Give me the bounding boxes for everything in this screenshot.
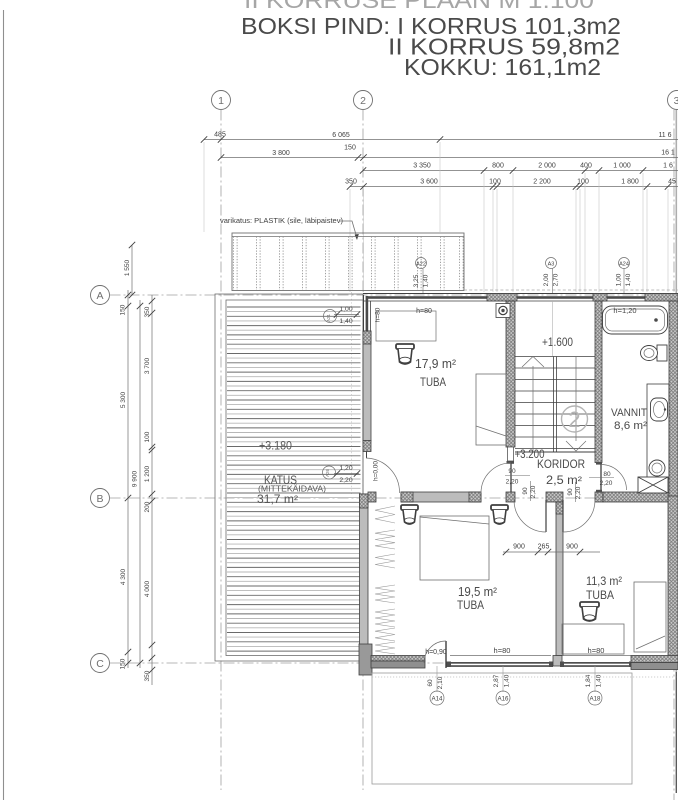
svg-text:2,20: 2,20 <box>575 486 582 499</box>
svg-text:3,25: 3,25 <box>413 274 420 287</box>
svg-text:9 900: 9 900 <box>132 470 139 487</box>
svg-text:3 350: 3 350 <box>413 163 431 170</box>
svg-text:17,9 m²: 17,9 m² <box>415 357 456 371</box>
svg-text:C: C <box>96 658 104 670</box>
svg-text:1,40: 1,40 <box>596 674 603 687</box>
svg-text:3 600: 3 600 <box>420 179 438 186</box>
svg-text:h=80: h=80 <box>375 307 382 322</box>
svg-text:3: 3 <box>674 95 678 107</box>
svg-text:1,00: 1,00 <box>616 273 623 286</box>
svg-text:2,00: 2,00 <box>543 273 550 286</box>
svg-text:1,40: 1,40 <box>504 674 511 687</box>
svg-text:100: 100 <box>577 179 589 186</box>
svg-text:2,20: 2,20 <box>600 480 613 487</box>
svg-text:1,84: 1,84 <box>585 674 592 687</box>
svg-text:11,3 m²: 11,3 m² <box>586 574 622 588</box>
svg-text:h=1,20: h=1,20 <box>613 306 636 315</box>
svg-text:350: 350 <box>144 306 151 317</box>
svg-text:A18: A18 <box>589 696 601 703</box>
svg-text:1,40: 1,40 <box>339 318 352 325</box>
svg-text:90: 90 <box>567 488 574 496</box>
svg-text:400: 400 <box>580 163 592 170</box>
svg-text:2: 2 <box>568 407 580 432</box>
svg-text:150: 150 <box>120 304 127 315</box>
svg-text:varikatus: PLASTIK (sile, läbi: varikatus: PLASTIK (sile, läbipaistev) <box>220 216 343 225</box>
svg-text:A16: A16 <box>497 696 509 703</box>
svg-text:2: 2 <box>360 95 366 107</box>
svg-text:h=80: h=80 <box>588 646 605 655</box>
svg-text:KOKKU: 161,1m2: KOKKU: 161,1m2 <box>404 54 601 80</box>
svg-text:1: 1 <box>218 95 224 107</box>
svg-text:2,20: 2,20 <box>506 479 519 486</box>
svg-text:A24: A24 <box>619 262 629 268</box>
svg-text:2,87: 2,87 <box>493 674 500 687</box>
svg-text:1 200: 1 200 <box>144 465 151 482</box>
svg-text:TUBA: TUBA <box>420 375 446 389</box>
svg-text:900: 900 <box>513 544 525 551</box>
svg-text:150: 150 <box>344 145 356 152</box>
svg-text:B: B <box>96 493 103 505</box>
svg-text:900: 900 <box>566 544 578 551</box>
svg-text:45: 45 <box>668 179 676 186</box>
svg-text:2,5 m²: 2,5 m² <box>546 475 582 487</box>
svg-text:VANNIT: VANNIT <box>611 407 647 419</box>
svg-text:A26: A26 <box>325 469 330 478</box>
svg-text:31,7 m²: 31,7 m² <box>257 494 298 506</box>
svg-text:4 300: 4 300 <box>120 568 127 585</box>
svg-text:3 700: 3 700 <box>144 357 151 374</box>
svg-text:1 800: 1 800 <box>621 179 639 186</box>
svg-text:II KORRUSE PLAAN M 1:100: II KORRUSE PLAAN M 1:100 <box>244 0 594 13</box>
svg-text:90: 90 <box>522 487 529 495</box>
svg-text:TUBA: TUBA <box>457 598 484 612</box>
svg-text:16 1: 16 1 <box>661 150 675 157</box>
svg-text:1,20: 1,20 <box>339 465 352 472</box>
svg-text:90: 90 <box>508 468 516 475</box>
svg-text:5 300: 5 300 <box>120 391 127 408</box>
svg-text:2,20: 2,20 <box>339 477 352 484</box>
svg-text:60: 60 <box>427 679 434 687</box>
svg-text:1,00: 1,00 <box>339 306 352 313</box>
svg-text:2,70: 2,70 <box>553 273 560 286</box>
svg-text:800: 800 <box>492 163 504 170</box>
svg-text:h=0,00: h=0,00 <box>373 461 380 481</box>
svg-text:3 800: 3 800 <box>272 150 290 157</box>
svg-text:350: 350 <box>345 179 357 186</box>
svg-text:350: 350 <box>144 670 151 681</box>
svg-text:2,20: 2,20 <box>530 485 537 498</box>
svg-text:19,5 m²: 19,5 m² <box>458 585 497 599</box>
svg-text:1 550: 1 550 <box>124 259 131 276</box>
svg-text:1 6: 1 6 <box>663 163 673 170</box>
svg-text:4 000: 4 000 <box>144 580 151 597</box>
svg-text:2,10: 2,10 <box>437 676 444 689</box>
svg-text:2 000: 2 000 <box>538 163 556 170</box>
svg-text:h=80: h=80 <box>416 308 432 315</box>
svg-text:485: 485 <box>214 132 226 139</box>
svg-text:100: 100 <box>489 179 501 186</box>
svg-text:A14: A14 <box>431 696 443 703</box>
svg-text:6 065: 6 065 <box>332 132 350 139</box>
svg-text:h=80: h=80 <box>494 646 511 655</box>
svg-text:200: 200 <box>144 501 151 512</box>
svg-text:2 200: 2 200 <box>533 179 551 186</box>
svg-text:A21: A21 <box>326 314 331 323</box>
svg-text:A: A <box>96 290 103 302</box>
svg-text:1 000: 1 000 <box>613 163 631 170</box>
svg-text:KORIDOR: KORIDOR <box>537 459 585 471</box>
svg-text:100: 100 <box>144 431 151 442</box>
svg-text:80: 80 <box>603 471 611 478</box>
svg-text:150: 150 <box>120 658 127 669</box>
svg-text:265: 265 <box>538 544 550 551</box>
svg-text:+1.600: +1.600 <box>542 337 573 349</box>
svg-text:(MITTEKÄIDAVA): (MITTEKÄIDAVA) <box>258 485 326 494</box>
svg-text:1,40: 1,40 <box>625 273 632 286</box>
svg-text:+3.180: +3.180 <box>259 441 292 453</box>
svg-text:A3: A3 <box>548 262 555 268</box>
svg-text:8,6 m²: 8,6 m² <box>614 420 647 432</box>
svg-text:1,40: 1,40 <box>423 274 430 287</box>
svg-text:11 6: 11 6 <box>658 132 671 139</box>
svg-text:A22: A22 <box>416 262 426 268</box>
svg-text:TUBA: TUBA <box>586 588 614 602</box>
svg-text:h=0,90: h=0,90 <box>425 649 447 656</box>
